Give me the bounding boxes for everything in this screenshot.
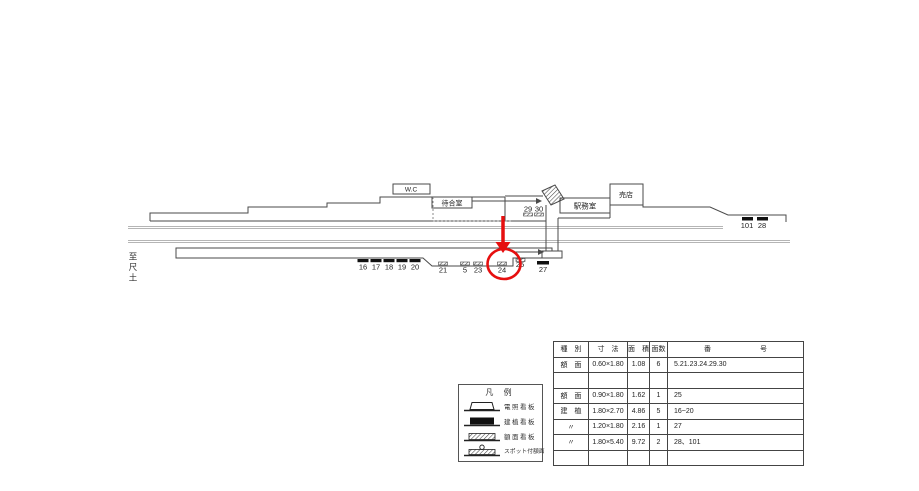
spotlight-sign-icon (464, 444, 500, 457)
spec-header-row: 種 別 寸 法 面 積 面数 番 号 (554, 342, 804, 358)
sign-label-29: 29 (524, 205, 532, 214)
table-row (554, 450, 804, 466)
cell-type (554, 450, 589, 466)
table-row: 〃 1.20×1.80 2.16 1 27 (554, 419, 804, 435)
cell-size: 0.60×1.80 (589, 357, 628, 373)
sign-label-27: 27 (539, 265, 547, 274)
sign-label-23: 23 (474, 266, 482, 275)
cell-size: 1.80×2.70 (589, 404, 628, 420)
cell-numbers: 25 (668, 388, 804, 404)
table-row: 額 面 0.90×1.80 1.62 1 25 (554, 388, 804, 404)
col-count-header: 面数 (650, 342, 668, 358)
wc-label: W.C (405, 187, 418, 194)
direction-label: 至尺土 (127, 252, 139, 284)
cell-area (628, 373, 650, 389)
cell-numbers: 5.21.23.24.29.30 (668, 357, 804, 373)
legend-item-illuminated: 電照看板 (459, 398, 542, 413)
sign-labels: 16 17 18 19 20 21 5 23 24 25 27 29 30 10… (359, 205, 766, 275)
cell-count (650, 373, 668, 389)
cell-area (628, 450, 650, 466)
cell-area: 1.08 (628, 357, 650, 373)
legend-item-spotlight: スポット付額面 (459, 443, 542, 458)
station-office-label: 駅務室 (574, 201, 597, 211)
spec-table: 種 別 寸 法 面 積 面数 番 号 額 面 0.60×1.80 1.08 6 … (553, 341, 804, 466)
cell-count: 6 (650, 357, 668, 373)
cell-count: 1 (650, 419, 668, 435)
cell-type: 〃 (554, 435, 589, 451)
cell-size: 0.90×1.80 (589, 388, 628, 404)
cell-numbers (668, 373, 804, 389)
flow-arrow-upper (472, 198, 542, 204)
cell-numbers: 27 (668, 419, 804, 435)
table-row: 建 植 1.80×2.70 4.86 5 16~20 (554, 404, 804, 420)
cell-count: 1 (650, 388, 668, 404)
cell-size: 1.20×1.80 (589, 419, 628, 435)
table-row: 〃 1.80×5.40 9.72 2 28、101 (554, 435, 804, 451)
legend-label-illuminated: 電照看板 (504, 401, 536, 411)
cell-type (554, 373, 589, 389)
sign-label-24: 24 (498, 266, 506, 275)
cell-size (589, 373, 628, 389)
legend-label-standing: 建植看板 (504, 416, 536, 426)
track-lines (128, 227, 790, 243)
cell-type: 建 植 (554, 404, 589, 420)
sign-label-18: 18 (385, 263, 393, 272)
legend-label-face: 額面看板 (504, 431, 536, 441)
legend-item-standing: 建植看板 (459, 413, 542, 428)
table-row: 額 面 0.60×1.80 1.08 6 5.21.23.24.29.30 (554, 357, 804, 373)
standing-sign-101 (742, 217, 753, 221)
cell-count: 2 (650, 435, 668, 451)
cell-count: 5 (650, 404, 668, 420)
cell-numbers (668, 450, 804, 466)
sign-label-16: 16 (359, 263, 367, 272)
sign-label-101: 101 (741, 221, 754, 230)
cell-type: 額 面 (554, 388, 589, 404)
illuminated-sign-icon (464, 399, 500, 412)
standing-sign-icon (464, 414, 500, 427)
waiting-room-label: 待合室 (442, 199, 463, 208)
col-size-header: 寸 法 (589, 342, 628, 358)
sign-label-5: 5 (463, 266, 467, 275)
col-area-header: 面 積 (628, 342, 650, 358)
cell-area: 2.16 (628, 419, 650, 435)
shop-label: 売店 (619, 190, 633, 199)
table-row (554, 373, 804, 389)
col-numbers-header: 番 号 (668, 342, 804, 358)
station-sign-map-page: W.C 待合室 駅務室 売店 (0, 0, 919, 491)
sign-label-19: 19 (398, 263, 406, 272)
legend-box: 凡 例 電照看板 建植看板 額面看板 (458, 384, 543, 462)
legend-title: 凡 例 (459, 387, 542, 398)
cell-area: 4.86 (628, 404, 650, 420)
cell-numbers: 28、101 (668, 435, 804, 451)
sign-label-28: 28 (758, 221, 766, 230)
cell-type: 〃 (554, 419, 589, 435)
face-sign-icon (464, 429, 500, 442)
cell-size: 1.80×5.40 (589, 435, 628, 451)
standing-sign-28 (757, 217, 768, 221)
cell-area: 9.72 (628, 435, 650, 451)
legend-label-spotlight: スポット付額面 (504, 446, 545, 455)
cell-area: 1.62 (628, 388, 650, 404)
standing-sign-27 (537, 261, 549, 265)
legend-item-face: 額面看板 (459, 428, 542, 443)
sign-label-21: 21 (439, 266, 447, 275)
cell-count (650, 450, 668, 466)
cell-type: 額 面 (554, 357, 589, 373)
sign-label-30: 30 (535, 205, 543, 214)
cell-size (589, 450, 628, 466)
sign-label-17: 17 (372, 263, 380, 272)
cell-numbers: 16~20 (668, 404, 804, 420)
sign-label-20: 20 (411, 263, 419, 272)
col-type-header: 種 別 (554, 342, 589, 358)
